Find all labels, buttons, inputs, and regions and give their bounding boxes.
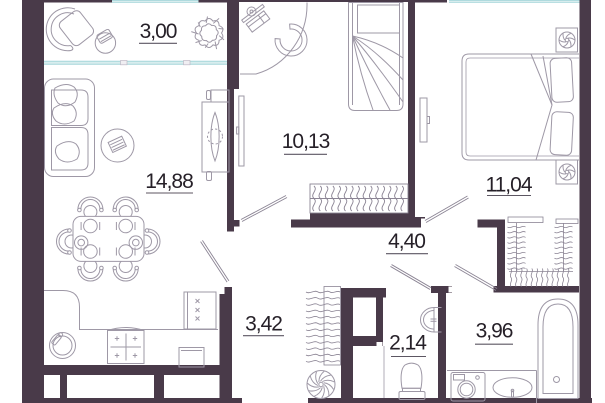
- svg-text:2,14: 2,14: [389, 331, 427, 354]
- svg-text:3,42: 3,42: [245, 312, 282, 335]
- svg-text:11,04: 11,04: [486, 173, 533, 196]
- svg-text:14,88: 14,88: [145, 170, 193, 193]
- svg-text:3,00: 3,00: [140, 20, 177, 43]
- svg-text:4,40: 4,40: [388, 230, 425, 253]
- svg-text:10,13: 10,13: [282, 130, 330, 153]
- svg-text:3,96: 3,96: [476, 319, 513, 342]
